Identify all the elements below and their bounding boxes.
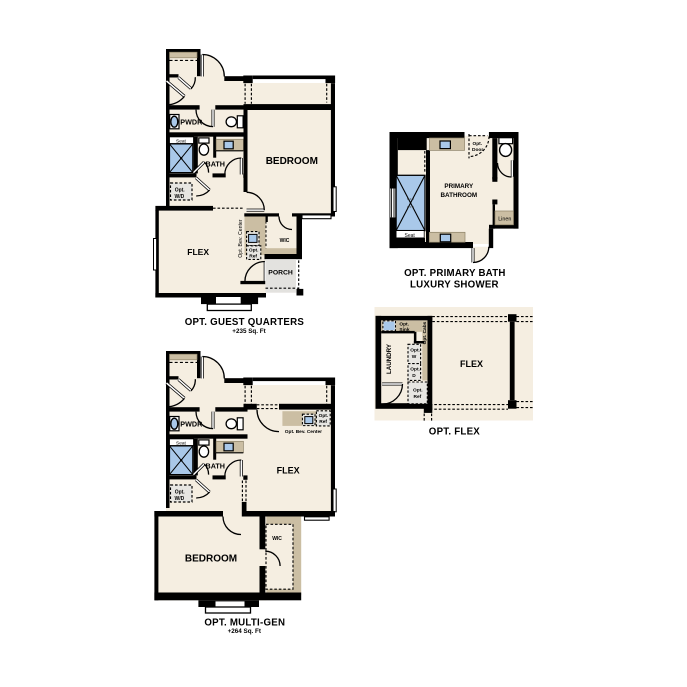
- svg-text:Opt.: Opt.: [473, 141, 483, 147]
- svg-text:Door: Door: [472, 147, 483, 153]
- svg-text:W: W: [412, 354, 417, 360]
- svg-text:WIC: WIC: [280, 238, 290, 244]
- svg-text:PORCH: PORCH: [268, 270, 293, 277]
- svg-text:FLEX: FLEX: [460, 359, 483, 369]
- svg-text:OPT. FLEX: OPT. FLEX: [429, 427, 481, 438]
- svg-text:OPT. GUEST QUARTERS: OPT. GUEST QUARTERS: [185, 317, 305, 328]
- svg-text:Ref: Ref: [319, 419, 327, 425]
- svg-text:WIC: WIC: [272, 536, 282, 542]
- svg-text:Opt.: Opt.: [249, 248, 259, 254]
- svg-text:FLEX: FLEX: [187, 247, 209, 257]
- svg-text:Ref: Ref: [249, 254, 257, 260]
- svg-text:Ref: Ref: [414, 394, 422, 400]
- svg-text:D: D: [412, 373, 416, 379]
- svg-text:BATHROOM: BATHROOM: [440, 192, 477, 199]
- svg-text:Opt.: Opt.: [399, 321, 409, 327]
- svg-text:Opt.: Opt.: [413, 387, 423, 393]
- svg-text:Opt.: Opt.: [410, 367, 420, 373]
- svg-text:FLEX: FLEX: [277, 466, 300, 476]
- svg-text:+264 Sq. Ft: +264 Sq. Ft: [228, 628, 262, 635]
- svg-text:Opt.: Opt.: [410, 348, 420, 354]
- svg-text:LAUNDRY: LAUNDRY: [386, 343, 393, 374]
- svg-text:OPT. PRIMARY BATH: OPT. PRIMARY BATH: [404, 268, 506, 279]
- svg-text:OPT. MULTI-GEN: OPT. MULTI-GEN: [204, 617, 285, 628]
- svg-text:+235 Sq. Ft: +235 Sq. Ft: [232, 328, 266, 335]
- svg-text:PRIMARY: PRIMARY: [444, 183, 474, 190]
- svg-text:LUXURY SHOWER: LUXURY SHOWER: [410, 279, 499, 290]
- svg-text:BEDROOM: BEDROOM: [185, 554, 237, 565]
- svg-text:Opt. Cabs: Opt. Cabs: [422, 321, 428, 344]
- svg-text:BEDROOM: BEDROOM: [266, 156, 318, 167]
- svg-text:Opt. Bev. Center: Opt. Bev. Center: [285, 429, 322, 435]
- svg-text:Opt.: Opt.: [319, 413, 329, 419]
- svg-text:Opt. Bev. Center: Opt. Bev. Center: [238, 219, 244, 258]
- svg-text:Linen: Linen: [498, 217, 511, 223]
